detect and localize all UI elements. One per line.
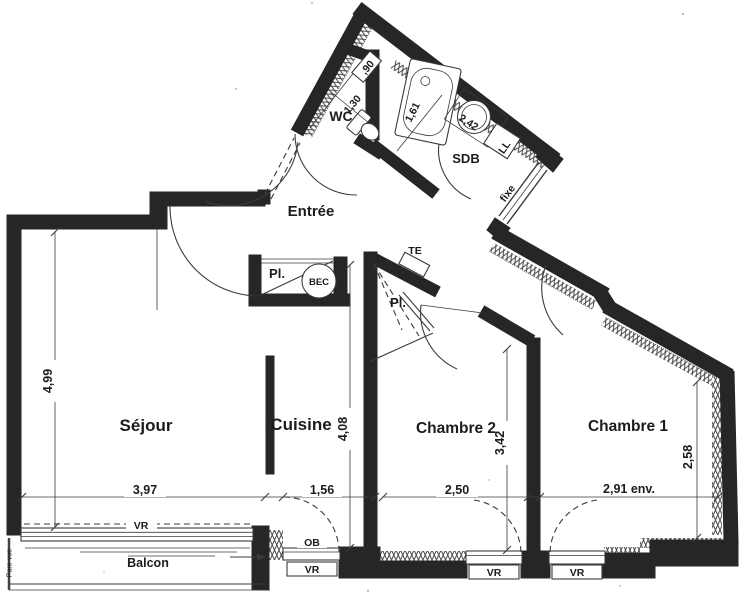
- chambre1-window: [549, 551, 605, 564]
- chambre2-door-arc: [421, 305, 457, 369]
- chambre2-shutter-arc: [474, 500, 521, 552]
- bec-label: BEC: [309, 277, 329, 288]
- walls: [7, 8, 738, 590]
- ob-cuisine-label: OB: [304, 537, 320, 549]
- dim-chambre1-width: 2,91 env.: [603, 482, 655, 496]
- room-entree: Entrée: [288, 203, 335, 220]
- room-chambre1: Chambre 1: [588, 418, 668, 435]
- room-sejour: Séjour: [120, 416, 173, 435]
- sdb-door-arc: [439, 138, 471, 199]
- room-chambre2: Chambre 2: [416, 420, 496, 437]
- wc-door-arc: [295, 134, 357, 195]
- vr-cuisine-label: VR: [305, 564, 320, 576]
- chambre2-door-leaf: [421, 305, 483, 313]
- vr-sejour-label: VR: [134, 520, 149, 532]
- room-wc: WC: [329, 108, 352, 124]
- dim-chambre1-depth: 2,58: [681, 445, 695, 469]
- room-placard-entree: Pl.: [269, 266, 285, 281]
- dim-cuisine-depth: 4,08: [336, 417, 350, 441]
- cuisine-window: [283, 548, 340, 560]
- dim-chambre2-width: 2,50: [445, 483, 469, 497]
- pare-vue-label: Pare-vue: [7, 549, 14, 578]
- dim-cuisine-width: 1,56: [310, 483, 334, 497]
- vr-chambre1-label: VR: [570, 567, 585, 579]
- chambre1-shutter-arc: [550, 500, 597, 552]
- fixe-label: fixe: [498, 183, 519, 205]
- floor-plan-svg: 4,99 3,97 1,56 4,08 2,50 3,42 2,91 env. …: [0, 0, 745, 600]
- room-placard-hall: Pl.: [390, 295, 406, 310]
- floor-plan-page: 4,99 3,97 1,56 4,08 2,50 3,42 2,91 env. …: [0, 0, 745, 600]
- room-balcon: Balcon: [127, 556, 169, 570]
- vr-chambre2-label: VR: [487, 567, 502, 579]
- room-cuisine: Cuisine: [270, 415, 331, 434]
- te-label: TE: [408, 245, 421, 257]
- chambre2-window: [466, 551, 522, 564]
- room-sdb: SDB: [452, 151, 479, 166]
- sejour-opening-arc: [170, 206, 258, 296]
- room-labels: Séjour Cuisine Chambre 2 Chambre 1 Entré…: [120, 108, 669, 570]
- dim-sejour-depth: 4,99: [41, 369, 55, 393]
- dim-sejour-width: 3,97: [133, 483, 157, 497]
